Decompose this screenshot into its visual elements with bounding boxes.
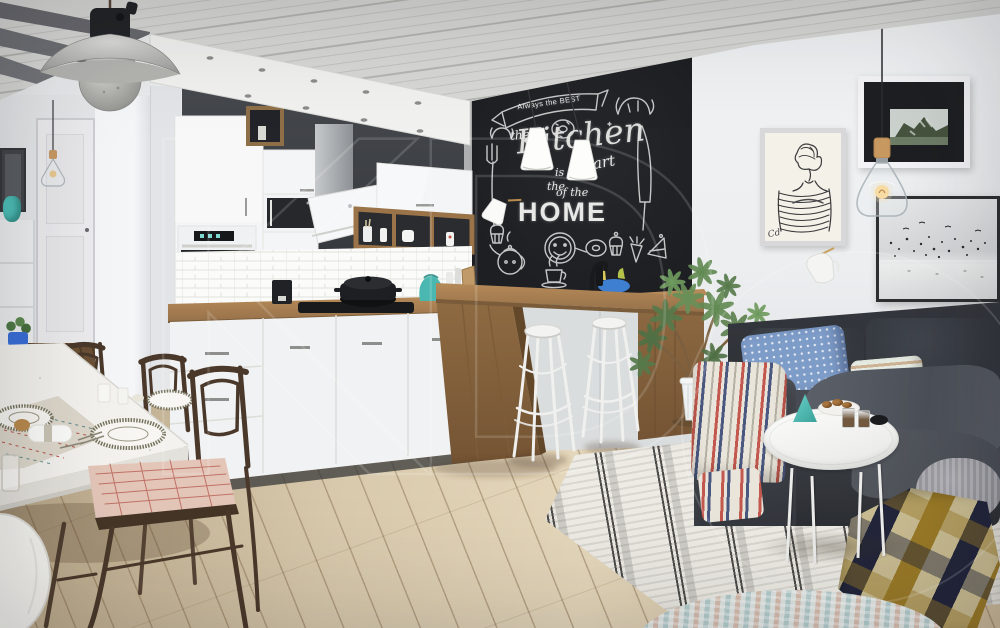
plate xyxy=(92,420,164,448)
drink-glass xyxy=(858,410,870,428)
drink-glass xyxy=(842,408,855,428)
plate xyxy=(148,391,192,409)
wall-sconce-left xyxy=(481,188,521,229)
croissant-snack xyxy=(822,401,832,408)
throw-blanket-drape xyxy=(698,467,765,523)
cabinet-filler xyxy=(263,232,318,252)
black-bowl xyxy=(870,415,888,425)
napkin-roll xyxy=(28,425,72,442)
dining-set xyxy=(0,318,300,628)
wall-sconce-right xyxy=(800,246,846,290)
industrial-pendant-lamp xyxy=(28,0,198,130)
water-glass xyxy=(2,455,19,491)
coffee-table-shadow xyxy=(758,530,908,564)
coffee-machine xyxy=(272,280,292,304)
interior-scene: Always the BEST the Kitchen is the Heart… xyxy=(0,0,1000,628)
fruit-bowl xyxy=(596,264,630,293)
